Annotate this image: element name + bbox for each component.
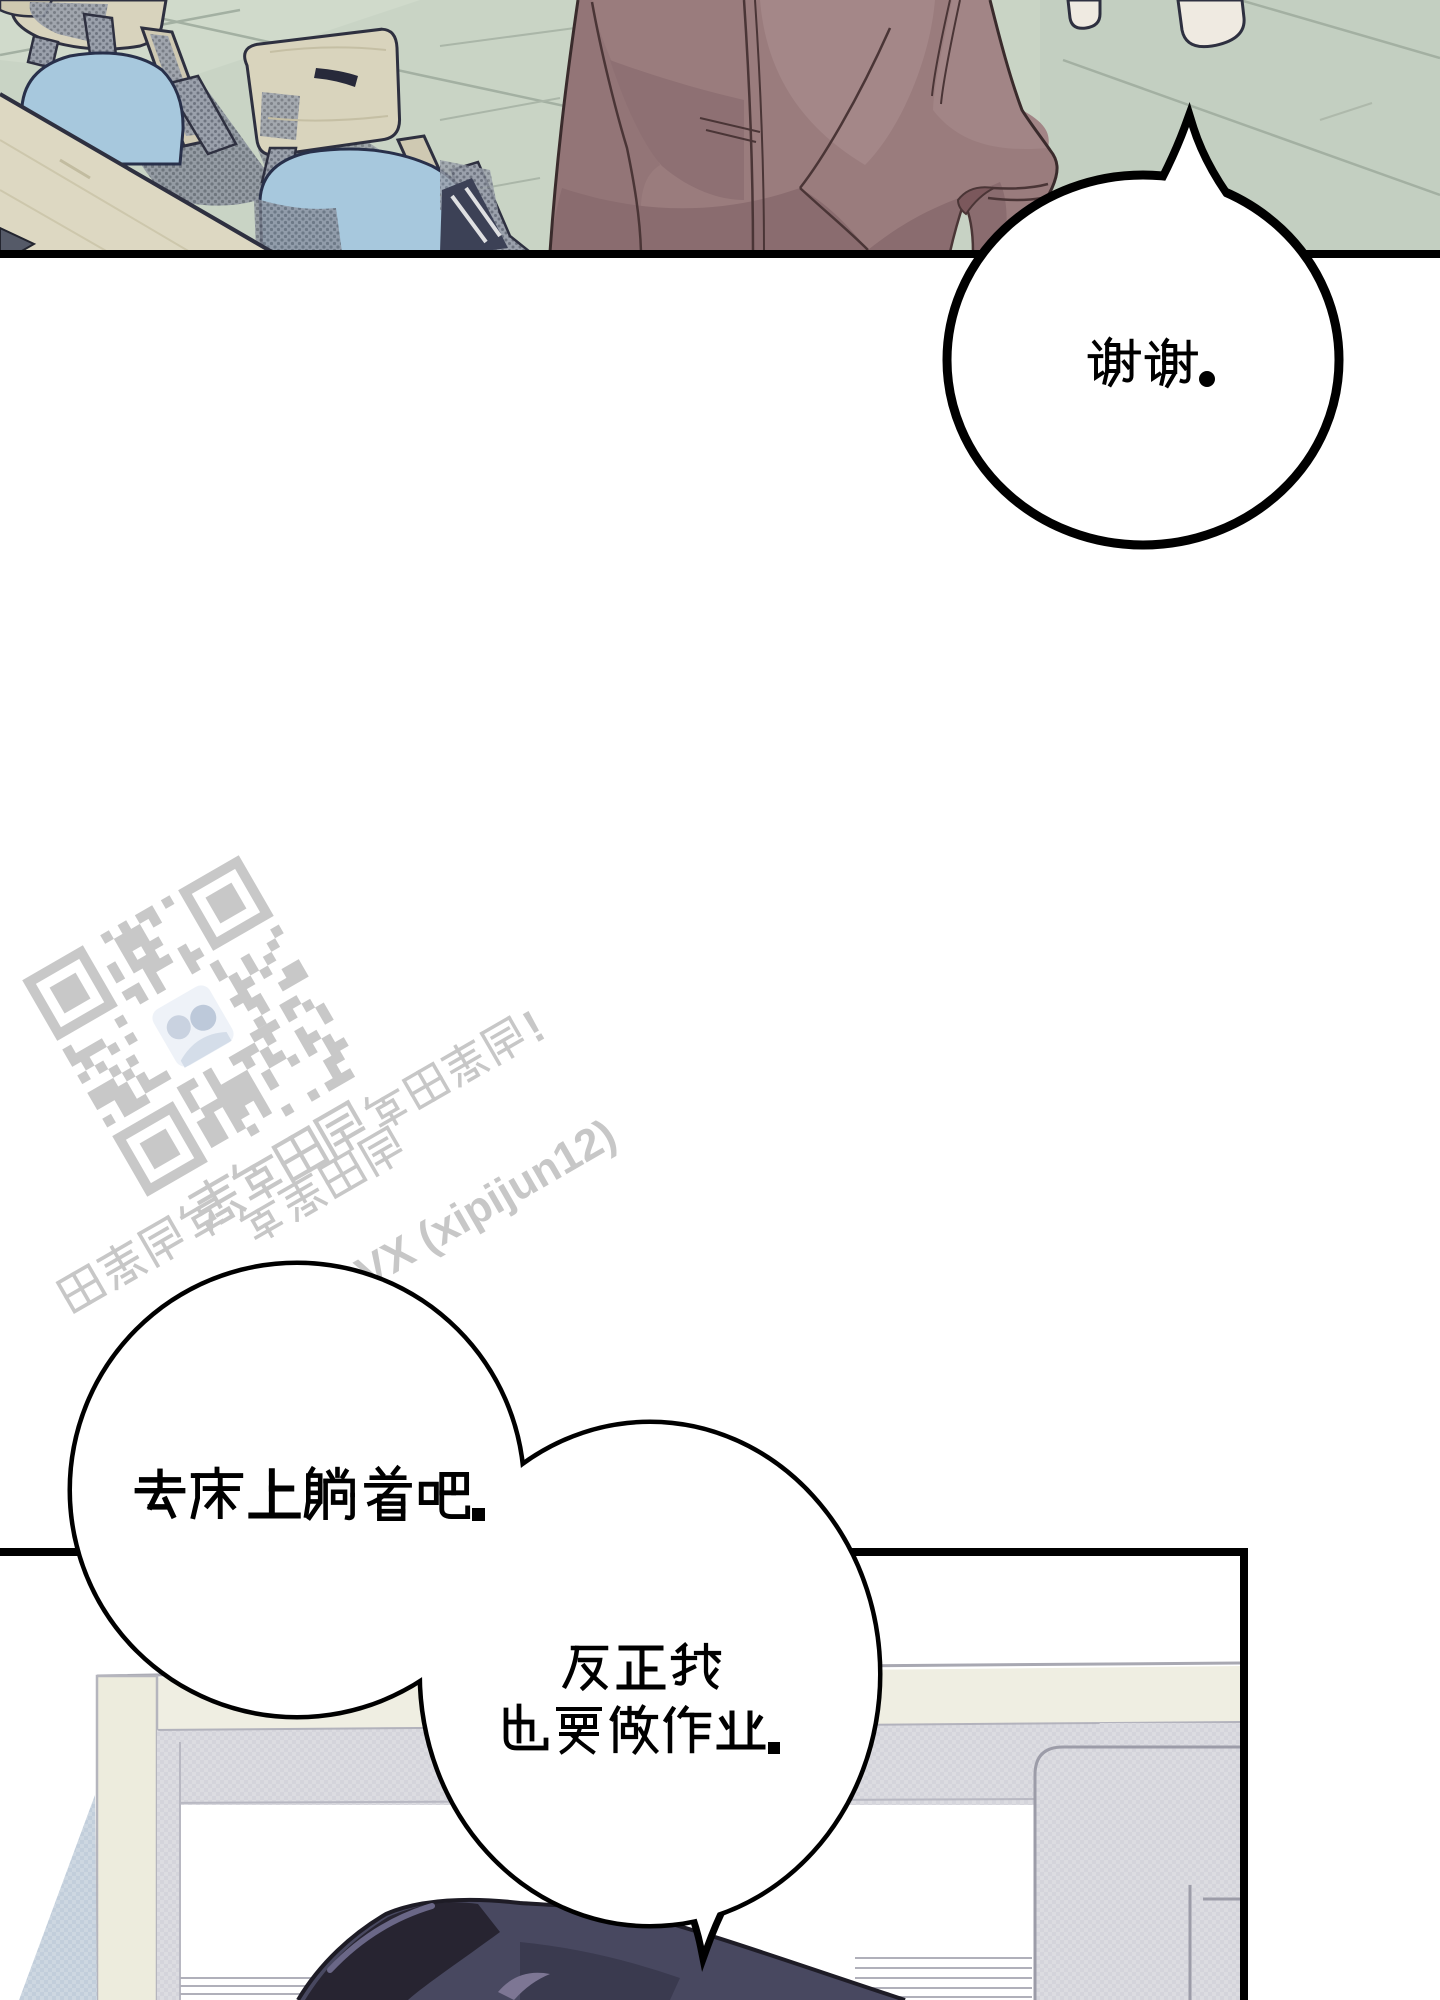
svg-text:VX (xipijun12): VX (xipijun12) <box>348 1110 624 1298</box>
svg-text:!: ! <box>514 1000 553 1053</box>
